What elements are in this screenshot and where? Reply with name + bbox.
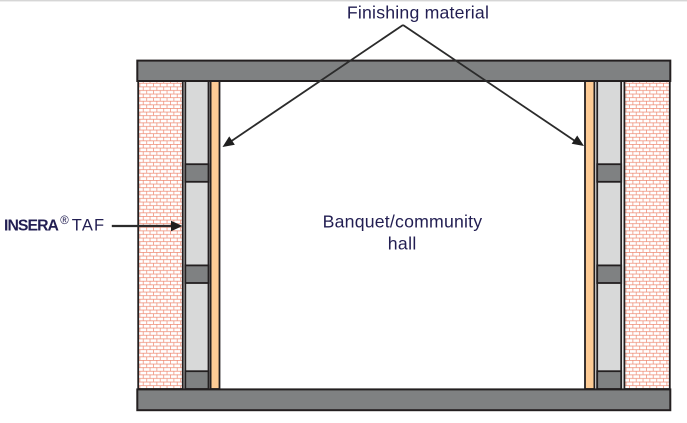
svg-text:INSERA: INSERA <box>4 218 59 235</box>
svg-text:hall: hall <box>388 233 417 253</box>
svg-text:Banquet/community: Banquet/community <box>323 212 483 232</box>
svg-text:TAF: TAF <box>72 217 106 235</box>
svg-text:Finishing material: Finishing material <box>347 2 489 22</box>
svg-text:®: ® <box>60 215 69 227</box>
